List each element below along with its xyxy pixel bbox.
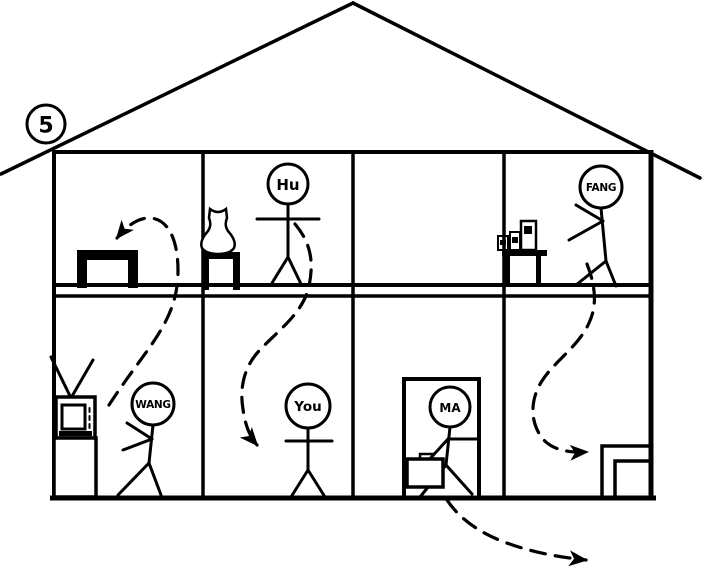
house-cross-section-diagram: 5 bbox=[0, 0, 705, 574]
vase-shape bbox=[201, 209, 235, 254]
person-fang-leg-left bbox=[576, 261, 606, 285]
arrow-wang-to-upstairs-room1 bbox=[109, 218, 178, 405]
person-you: You bbox=[286, 384, 332, 497]
corner-cabinet bbox=[602, 446, 653, 498]
diagram-canvas: 5 bbox=[0, 0, 705, 574]
shelf-leg-left bbox=[505, 256, 510, 285]
tv-stand bbox=[54, 438, 96, 497]
person-fang-label: FANG bbox=[586, 182, 616, 194]
person-ma-group: MA bbox=[404, 379, 479, 498]
person-fang: FANG bbox=[569, 166, 622, 286]
item-number-badge: 5 bbox=[27, 105, 65, 143]
roof-left-slope bbox=[1, 3, 353, 174]
person-fang-arm-lower bbox=[569, 221, 603, 240]
shelf-leg-right bbox=[536, 256, 541, 285]
corner-cabinet-inner bbox=[615, 461, 653, 498]
person-ma-label: MA bbox=[439, 401, 461, 415]
person-you-label: You bbox=[293, 399, 321, 415]
tv-speaker-band bbox=[59, 431, 92, 436]
corner-cabinet-outer bbox=[602, 446, 653, 498]
book-2-label bbox=[512, 237, 518, 243]
person-wang: WANG bbox=[118, 383, 174, 495]
person-ma-body bbox=[446, 427, 450, 465]
picture-frame bbox=[77, 250, 138, 288]
person-hu-label: Hu bbox=[276, 176, 299, 194]
tv-antenna-right bbox=[71, 360, 93, 398]
person-wang-leg-right bbox=[149, 463, 161, 495]
person-fang-body bbox=[601, 208, 606, 261]
arrow-ma-to-outside bbox=[447, 500, 586, 560]
person-hu: Hu bbox=[257, 164, 319, 284]
person-you-leg-right bbox=[308, 470, 325, 497]
person-wang-body bbox=[149, 425, 153, 463]
person-hu-leg-left bbox=[272, 257, 288, 283]
book-3 bbox=[521, 221, 536, 250]
person-wang-label: WANG bbox=[135, 399, 170, 411]
person-fang-leg-right bbox=[606, 261, 616, 286]
tv-on-stand bbox=[51, 357, 96, 497]
briefcase bbox=[407, 459, 443, 487]
book-1-label bbox=[500, 240, 506, 245]
item-number-label: 5 bbox=[38, 114, 53, 139]
picture-frame-shape bbox=[77, 250, 138, 288]
person-you-leg-left bbox=[291, 470, 308, 497]
person-wang-arm-lower bbox=[123, 439, 152, 450]
person-ma-leg-right bbox=[446, 465, 472, 494]
house-outline bbox=[50, 150, 656, 500]
arrow-fang-to-downstairs-room4 bbox=[533, 264, 594, 452]
book-3-label bbox=[524, 226, 532, 234]
vase-on-stool bbox=[201, 209, 240, 290]
person-hu-leg-right bbox=[288, 257, 301, 284]
person-wang-leg-left bbox=[118, 463, 149, 495]
